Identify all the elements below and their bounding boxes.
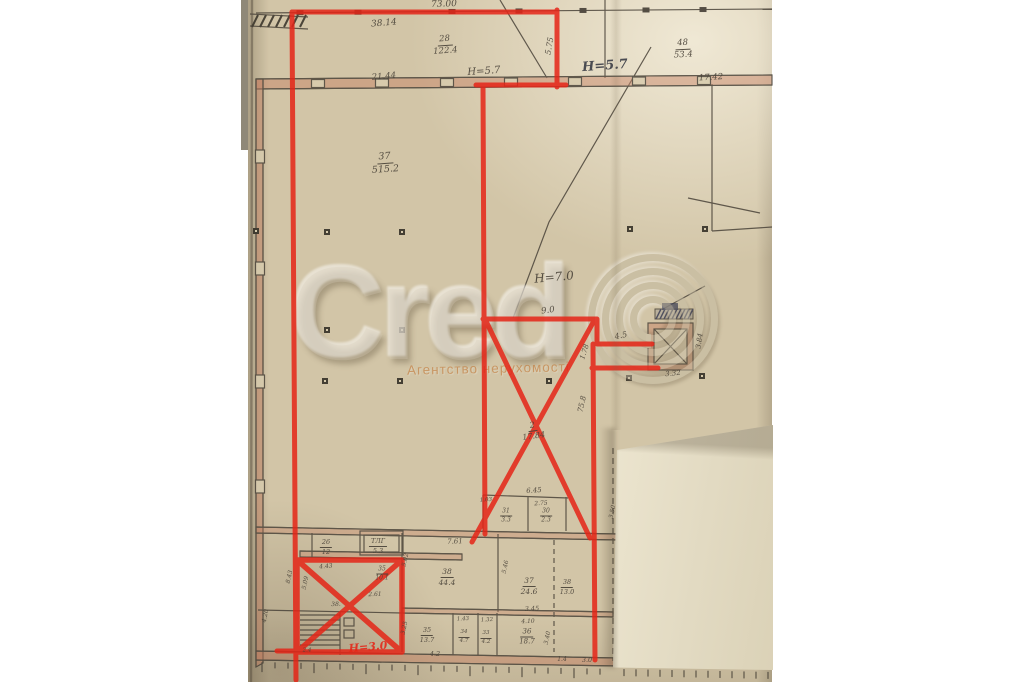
room-area-label: 334.2 [481,631,492,645]
page-fold-shadow [600,428,615,668]
dimension-label: 3.25 [401,621,410,635]
dimension-label: 4.43 [319,564,333,571]
height-note: H=5.7 [467,66,501,78]
dimension-label: 3.45 [525,605,540,612]
folded-blank-page [610,424,773,670]
room-area-label: 3510.1 [375,567,388,582]
folded-page-edge [610,424,773,670]
dimension-label: 4.2 [430,651,440,658]
room-area-label: 3813.0 [560,579,574,595]
dimension-label: 1.78 [579,344,590,361]
room-area-label: 3844.4 [439,568,456,586]
room-area-label: 344.7 [459,630,470,644]
dimension-label: 17.42 [699,73,724,83]
paper-crease [610,0,622,430]
room-area-label: 4853.4 [673,39,693,60]
dimension-label: 38. [331,602,341,608]
dimension-label: 2.75 [534,501,548,508]
dimension-label: 5.75 [545,37,556,56]
room-area-label: 3618.7 [519,629,535,646]
dimension-label: 1.32 [481,618,493,624]
dimension-label: 7.61 [447,538,463,546]
dimension-label: 3.84 [695,333,704,349]
dimension-label: 5.46 [502,560,511,574]
dimension-label: 6.45 [526,487,542,495]
room-area-label: 2612 [320,539,332,555]
room-area-label: 302.3 [540,509,552,524]
dimension-label: 1.43 [457,617,469,623]
dimension-label: 1.03 [480,498,493,504]
dimension-label: 2.4 [303,648,312,654]
room-area-label: ТЛГ5.3 [369,538,387,554]
dimension-label: 4.10 [521,619,535,625]
height-note: H=7.0 [534,269,575,284]
dimension-label: 75.8 [577,395,588,413]
dimension-label: 5.02 [402,553,411,567]
dimension-label: 9.0 [541,306,556,316]
handwritten-labels: 73.0038.1428122.421.44H=5.75.75H=5.74853… [0,0,1024,682]
dimension-label: 3.40 [544,631,553,645]
dimension-label: 5.09 [302,576,311,590]
dimension-label: 21.44 [372,72,397,83]
red-height-note: H=3.0 [348,640,388,654]
room-area-label: 28122.4 [432,34,458,56]
room-area-label: 313.3 [500,509,512,524]
dimension-label: 73.00 [431,0,457,10]
dimension-label: 38.14 [371,18,397,29]
room-area-label: 3513.7 [420,627,434,643]
room-area-label: 37515.2 [371,151,400,175]
dimension-label: 8.43 [286,570,295,584]
photo-of-floor-plan: Cred Агентство нерухомості 73.0038.14281… [0,0,1024,682]
dimension-label: 4.20 [262,609,271,623]
room-area-label: 3724.6 [521,577,538,595]
room-area-label: 217.84 [520,420,545,442]
dimension-label: 3.0 [582,657,592,664]
dimension-label: 1.4 [557,657,567,663]
dimension-label: 3.32 [665,370,681,379]
dimension-label: 2.61 [368,592,382,598]
